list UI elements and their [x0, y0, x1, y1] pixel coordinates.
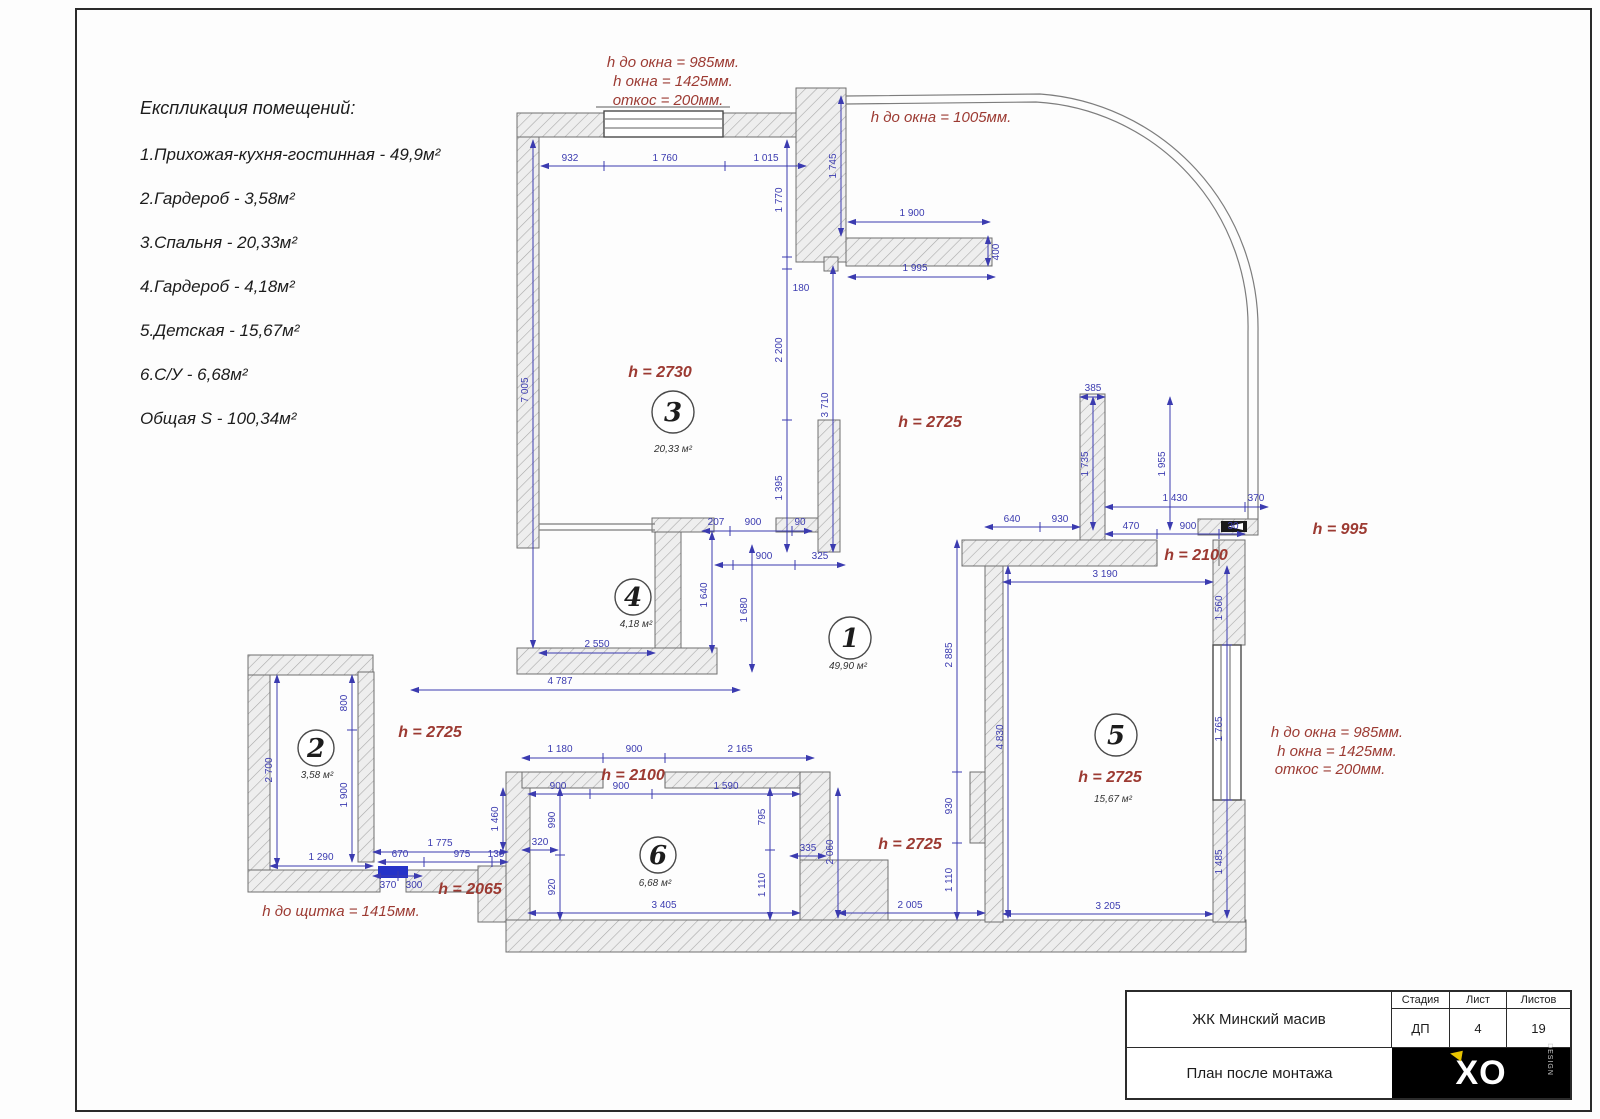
dim-label: 2 005	[897, 900, 922, 911]
room-number: 1	[841, 624, 859, 654]
wall-segment	[506, 920, 1246, 952]
room-number: 2	[306, 734, 325, 764]
window-annotation: h до окна = 985мм.	[1271, 724, 1403, 741]
dim-label: 1 290	[308, 852, 333, 863]
dim-label: 30	[1227, 521, 1239, 532]
dim-label: 2 550	[584, 639, 609, 650]
room-area: 6,68 м²	[639, 878, 672, 889]
dim-label: 1 430	[1162, 493, 1187, 504]
wall-segment	[248, 870, 380, 892]
dim-label: 795	[757, 808, 768, 825]
sheet-value: 4	[1450, 1009, 1507, 1048]
room-area: 15,67 м²	[1094, 794, 1133, 805]
logo: XO DESIGN	[1392, 1048, 1570, 1098]
dim-label: 370	[1248, 493, 1265, 504]
dim-label: 470	[1123, 521, 1140, 532]
dim-label: 1 395	[774, 475, 785, 500]
dim-label: 3 205	[1095, 901, 1120, 912]
height-label: h = 995	[1313, 521, 1369, 538]
sheet-header: Лист	[1450, 992, 1507, 1009]
dim-label: 3 405	[651, 900, 676, 911]
dim-label: 207	[708, 517, 725, 528]
room-area: 49,90 м²	[829, 661, 868, 672]
room-number: 3	[664, 398, 682, 428]
room-area: 20,33 м²	[653, 444, 693, 455]
dim-label: 1 955	[1157, 451, 1168, 476]
wall-segment	[846, 238, 992, 266]
dim-label: 1 180	[547, 744, 572, 755]
dim-label: 975	[454, 849, 471, 860]
height-label: h = 2725	[898, 414, 963, 431]
dim-label: 1 460	[490, 806, 501, 831]
sheets-value: 19	[1507, 1009, 1570, 1048]
dim-label: 1 765	[1214, 716, 1225, 741]
dim-label: 3 710	[820, 392, 831, 417]
dim-label: 325	[812, 551, 829, 562]
dim-label: 320	[532, 837, 549, 848]
title-block: ЖК Минский масив Стадия Лист Листов ДП 4…	[1125, 990, 1572, 1100]
height-label: h = 2100	[1164, 547, 1228, 564]
height-label: h = 2065	[438, 881, 503, 898]
dim-label: 130	[488, 849, 505, 860]
logo-triangle-icon	[1451, 1050, 1466, 1062]
dim-label: 1 900	[339, 782, 350, 807]
dim-label: 900	[550, 781, 567, 792]
dim-label: 1 900	[899, 208, 924, 219]
dim-label: 1 745	[828, 153, 839, 178]
room-area: 4,18 м²	[620, 619, 653, 630]
dim-label: 4 787	[547, 676, 572, 687]
dim-label: 990	[547, 811, 558, 828]
dim-label: 2 885	[944, 642, 955, 667]
logo-design-text: DESIGN	[1546, 1043, 1553, 1076]
dim-label: 932	[562, 153, 579, 164]
window-annotation: откос = 200мм.	[1275, 761, 1386, 778]
dim-label: 300	[406, 880, 423, 891]
room-number: 6	[649, 841, 667, 871]
wall-segment	[652, 518, 714, 532]
window-room3	[604, 111, 723, 137]
dim-label: 2 700	[264, 757, 275, 782]
dim-label: 900	[745, 517, 762, 528]
window-annotation: h окна = 1425мм.	[1277, 743, 1397, 760]
dim-label: 1 680	[739, 597, 750, 622]
dim-label: 90	[794, 517, 806, 528]
dim-label: 1 775	[427, 838, 452, 849]
dim-label: 180	[793, 283, 810, 294]
stage-header: Стадия	[1392, 992, 1450, 1009]
dim-label: 1 110	[757, 872, 768, 897]
dim-label: 920	[547, 878, 558, 895]
dim-label: 670	[392, 849, 409, 860]
drawing-title: План после монтажа	[1127, 1048, 1392, 1098]
dim-label: 7 005	[520, 377, 531, 402]
wall-segment	[655, 532, 681, 648]
dim-label: 1 735	[1080, 451, 1091, 476]
wall-segment	[358, 672, 374, 862]
height-label: h = 2725	[878, 836, 943, 853]
window-annotation: откос = 200мм.	[613, 92, 724, 109]
dim-label: 2 060	[825, 839, 836, 864]
room-number: 5	[1107, 721, 1125, 751]
height-label: h = 2725	[398, 724, 463, 741]
wall-segment	[665, 772, 814, 788]
dim-label: 1 995	[902, 263, 927, 274]
dim-label: 930	[1052, 514, 1069, 525]
dim-label: 1 590	[713, 781, 738, 792]
wall-segment	[818, 420, 840, 552]
dim-label: 1 485	[1214, 849, 1225, 874]
bay-facade-inner	[846, 102, 1248, 519]
panel-annotation: h до щитка = 1415мм.	[262, 903, 420, 920]
dim-label: 3 190	[1092, 569, 1117, 580]
window-annotation: h до окна = 1005мм.	[871, 109, 1012, 126]
dim-label: 930	[944, 797, 955, 814]
dim-label: 1 640	[699, 582, 710, 607]
wall-segment	[962, 540, 1157, 566]
wall-segment	[248, 655, 373, 675]
project-name: ЖК Минский масив	[1127, 992, 1392, 1048]
height-label: h = 2100	[601, 767, 665, 784]
floor-plan: 932 1 760 1 015 1 745 1 900 400 1 995 7 …	[0, 0, 1600, 1119]
stage-value: ДП	[1392, 1009, 1450, 1048]
window-annotation: h окна = 1425мм.	[613, 73, 733, 90]
dim-label: 640	[1004, 514, 1021, 525]
dim-label: 800	[339, 694, 350, 711]
wall-segment	[517, 648, 717, 674]
height-label: h = 2730	[628, 364, 692, 381]
drawing-sheet: Експликация помещений: 1.Прихожая-кухня-…	[0, 0, 1600, 1119]
window-annotation: h до окна = 985мм.	[607, 54, 739, 71]
dim-label: 1 770	[774, 187, 785, 212]
bay-facade-outer	[846, 94, 1258, 519]
room-area: 3,58 м²	[301, 770, 334, 781]
dim-label: 1 560	[1214, 595, 1225, 620]
wall-segment	[517, 113, 539, 548]
dim-label: 2 165	[727, 744, 752, 755]
dim-label: 1 110	[944, 867, 955, 892]
dim-label: 335	[800, 843, 817, 854]
dim-label: 400	[991, 243, 1002, 260]
sheets-header: Листов	[1507, 992, 1570, 1009]
wall-segment	[517, 113, 604, 137]
dim-label: 900	[1180, 521, 1197, 532]
wall-pilaster	[970, 772, 985, 843]
dim-label: 370	[380, 880, 397, 891]
logo-text: XO	[1455, 1054, 1506, 1093]
dim-label: 4 830	[995, 724, 1006, 749]
dim-label: 1 015	[753, 153, 778, 164]
wall-segment	[824, 257, 838, 271]
room-markers: 3 20,33 м² 4 4,18 м² 1 49,90 м² 2 3,58 м…	[298, 391, 1137, 889]
dim-label: 900	[756, 551, 773, 562]
room-number: 4	[624, 583, 642, 613]
dim-label: 385	[1085, 383, 1102, 394]
height-label: h = 2725	[1078, 769, 1143, 786]
dim-label: 1 760	[652, 153, 677, 164]
dim-label: 2 200	[774, 337, 785, 362]
dim-label: 900	[626, 744, 643, 755]
